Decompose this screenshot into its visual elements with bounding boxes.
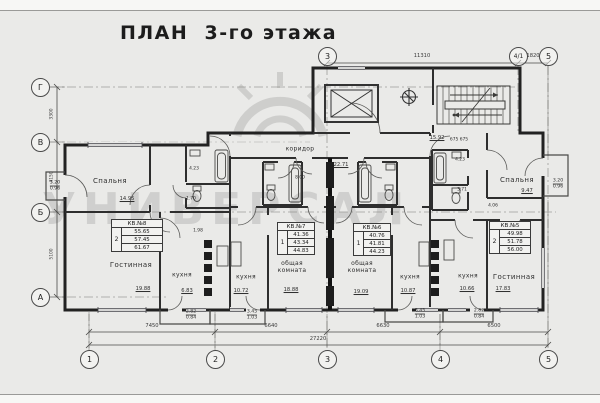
room-living5-label: Гостинная xyxy=(493,273,535,281)
balcony-b4-label: 2.820.84 xyxy=(474,309,484,320)
room-common6-label: общая комната xyxy=(340,261,384,275)
elevator-shaft xyxy=(325,85,378,122)
axis-col-4: 4 xyxy=(431,350,450,369)
balcony-b1-label: 2.820.84 xyxy=(186,310,196,321)
room-common7-area: 18.88 xyxy=(284,288,299,294)
dim-bath8-c: 1.98 xyxy=(193,228,203,233)
balcony-b2-label: 3.451.03 xyxy=(247,310,257,321)
balcony-b3-label: 3.451.03 xyxy=(415,309,425,320)
dim-bot-6640: 6640 xyxy=(264,324,277,330)
axis-row-a: А xyxy=(31,288,50,307)
room-living5-area: 17.83 xyxy=(496,287,511,293)
axis-col-1: 1 xyxy=(80,350,99,369)
stair-hall-area: 15.92 xyxy=(430,136,445,142)
apartment-box-7: КВ.№7 1 41.36 43.34 44.83 xyxy=(277,222,315,255)
room-living8-label: Гостинная xyxy=(110,261,152,269)
axis-col-3-top: 3 xyxy=(318,47,337,66)
room-kitchen8-label: кухня xyxy=(172,273,192,280)
dim-bot-6630: 6630 xyxy=(376,324,389,330)
dim-bath5-b: 3.71 xyxy=(457,187,467,192)
room-corridor-area: 22.71 xyxy=(334,163,349,169)
axis-col-2: 2 xyxy=(206,350,225,369)
dim-bath8-a: 4.23 xyxy=(189,166,199,171)
axis-col-3: 3 xyxy=(318,350,337,369)
room-kitchen5-area: 10.66 xyxy=(460,287,475,293)
axis-col-41-top: 4/1 xyxy=(509,47,528,66)
room-kitchen5-label: кухня xyxy=(458,274,478,281)
scanned-floor-plan-page: УНИВЕРСАЛ xyxy=(0,0,600,403)
room-common7-label: общая комната xyxy=(270,261,314,275)
dim-left-1: 3300 xyxy=(49,108,54,119)
dim-stair-steps: 675 675 xyxy=(450,137,468,142)
balcony-right-label: 3.200.96 xyxy=(553,179,563,190)
balcony-left-label: 3.200.96 xyxy=(50,181,60,192)
dim-bath8-b: 1.70 xyxy=(186,196,196,201)
room-corridor-label: коридор xyxy=(286,147,315,154)
room-kitchen7-area: 10.72 xyxy=(234,289,249,295)
dim-top-1820: 1820 xyxy=(526,54,539,60)
axis-col-5: 5 xyxy=(539,350,558,369)
stairs xyxy=(437,86,510,124)
dim-hall7: 8.00 xyxy=(295,175,305,180)
room-kitchen7-label: кухня xyxy=(236,275,256,282)
page-title: ПЛАН 3-го этажа xyxy=(120,22,337,44)
dim-left-3: 5100 xyxy=(49,248,54,259)
dim-bot-7450: 7450 xyxy=(145,324,158,330)
axis-row-v: В xyxy=(31,133,50,152)
apartment-box-6: КВ.№6 1 40.76 41.81 44.23 xyxy=(353,223,391,256)
dim-bot-6500: 6500 xyxy=(487,324,500,330)
garbage-chute xyxy=(400,88,418,106)
room-kitchen8-area: 6.83 xyxy=(181,289,193,295)
room-bedroom5-area: 9.47 xyxy=(521,189,533,195)
vent-shafts xyxy=(204,162,439,306)
room-bedroom8-area: 14.95 xyxy=(120,197,135,203)
axis-col-5-top: 5 xyxy=(539,47,558,66)
apartment-box-5: КВ.№5 2 49.98 51.78 56.00 xyxy=(489,221,531,254)
dim-top-11310: 11310 xyxy=(414,54,431,60)
dim-total-27220: 27220 xyxy=(310,337,327,343)
apartment-box-8: КВ.№8 2 55.65 57.45 61.67 xyxy=(111,219,163,252)
room-common6-area: 19.09 xyxy=(354,290,369,296)
room-kitchen6-area: 10.87 xyxy=(401,289,416,295)
room-kitchen6-label: кухня xyxy=(400,275,420,282)
room-living8-area: 19.88 xyxy=(136,287,151,293)
dim-bath5-a: 4.23 xyxy=(455,157,465,162)
axis-row-g: Г xyxy=(31,78,50,97)
dim-hall5: 4.06 xyxy=(488,203,498,208)
room-bedroom5-label: Спальня xyxy=(500,176,534,184)
room-bedroom8-label: Спальня xyxy=(93,177,127,185)
axis-row-b: Б xyxy=(31,203,50,222)
